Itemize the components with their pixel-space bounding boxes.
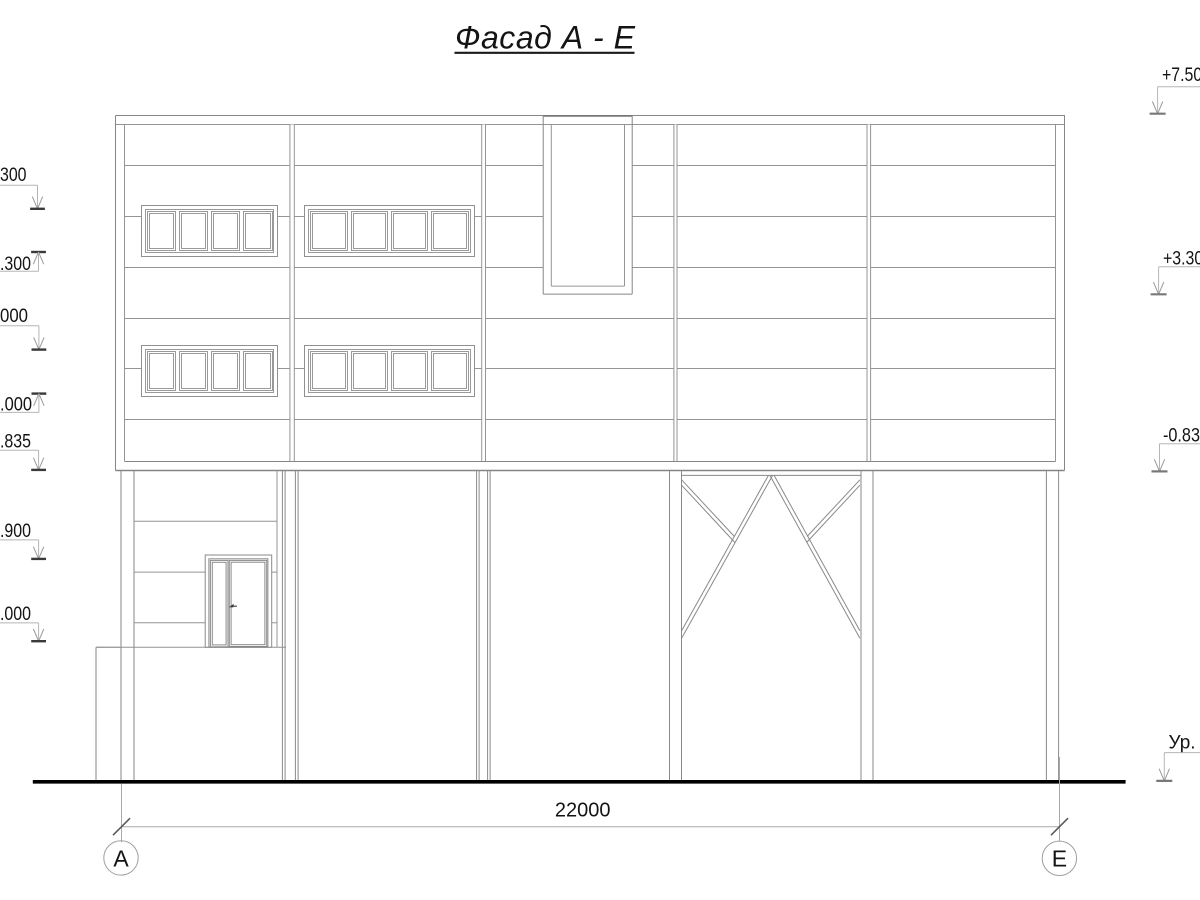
svg-text:.000: .000 — [0, 604, 31, 625]
svg-text:Е: Е — [1052, 846, 1067, 872]
svg-text:Ур. з.: Ур. з. — [1169, 733, 1200, 754]
svg-text:22000: 22000 — [555, 800, 611, 822]
svg-text:-0.830: -0.830 — [1163, 425, 1200, 446]
svg-text:300: 300 — [0, 165, 27, 186]
svg-text:Фасад А - Е: Фасад А - Е — [455, 20, 636, 56]
svg-text:.835: .835 — [0, 432, 31, 453]
svg-text:А: А — [113, 845, 129, 871]
svg-text:+3.300: +3.300 — [1163, 248, 1200, 269]
svg-text:.900: .900 — [0, 521, 31, 542]
svg-text:000: 000 — [0, 306, 28, 327]
svg-text:+7.500: +7.500 — [1162, 65, 1200, 86]
